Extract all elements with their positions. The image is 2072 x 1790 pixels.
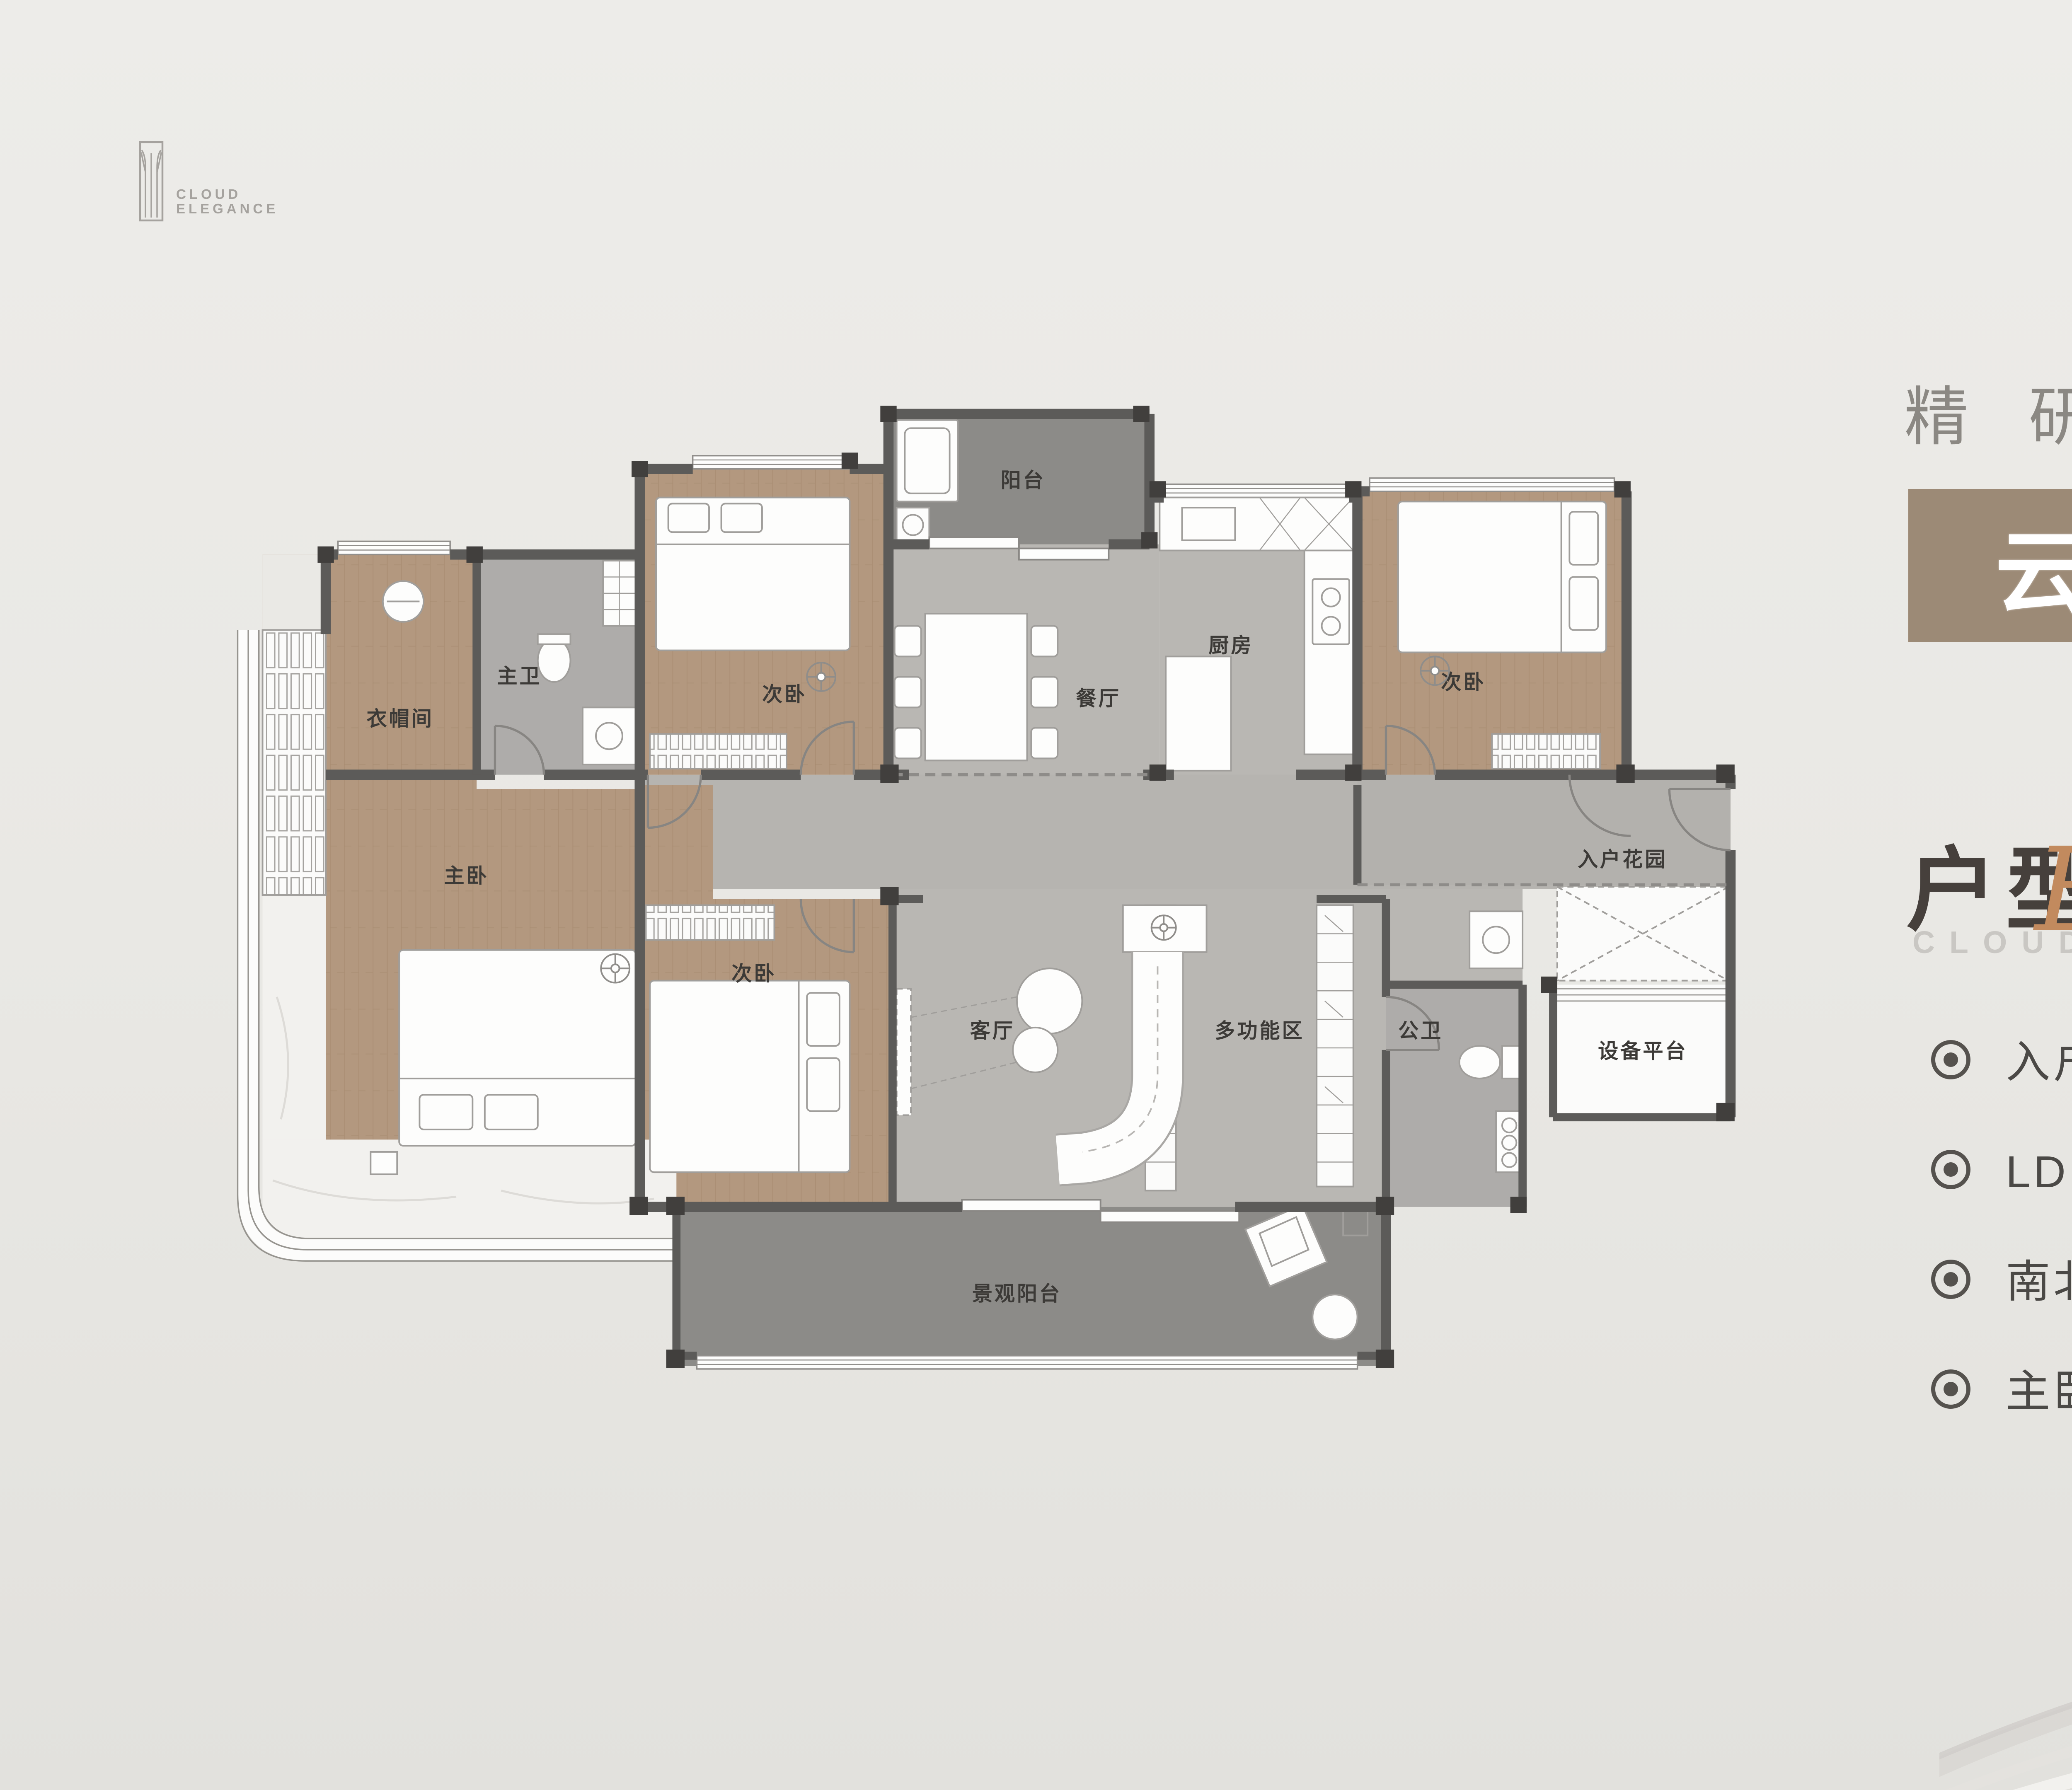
list-item: 主卧步入式衣帽间，270°全屏飘窗	[1931, 1353, 2072, 1423]
list-item: 入户花园设计，私藏生活小确幸	[1931, 1023, 2072, 1094]
room-label-entry-garden: 入户花园	[1578, 848, 1667, 871]
room-label-master-bedroom: 主卧	[444, 864, 489, 887]
target-bullet-icon	[1931, 1369, 1970, 1408]
brand-line1: CLOUD	[176, 188, 278, 204]
target-bullet-icon	[1931, 1259, 1970, 1298]
window-bedroom-nw	[693, 456, 850, 469]
room-label-balcony-north: 阳台	[1001, 469, 1046, 492]
window-balcony-south	[697, 1356, 1358, 1369]
slogan-heading: 精研空间人居美学	[1904, 365, 2072, 458]
window-kitchen	[1159, 484, 1357, 498]
room-label-guest-bath: 公卫	[1398, 1019, 1443, 1042]
room-label-dining: 餐厅	[1076, 687, 1121, 710]
room-label-kitchen: 厨房	[1208, 634, 1253, 657]
list-item: 南北对流双阳台，享清风阳光	[1931, 1243, 2072, 1313]
page: CLOUD ELEGANCE 精研空间人居美学 云领 四室二厅二卫 建筑面积约1…	[0, 0, 2072, 1790]
swoosh-decoration	[1939, 1521, 2072, 1790]
section-subtitle-caps: CLOUD	[1912, 926, 2072, 961]
unit-badge: 云领 四室二厅二卫 建筑面积约123m2	[1908, 489, 2072, 642]
brand-line2: ELEGANCE	[176, 204, 278, 220]
brand-logo: CLOUD ELEGANCE	[139, 141, 278, 222]
brand-logo-text: CLOUD ELEGANCE	[176, 188, 278, 222]
room-label-multi-zone: 多功能区	[1215, 1019, 1304, 1042]
room-label-master-bath: 主卫	[497, 665, 542, 687]
window-bedroom-ne	[1370, 478, 1614, 491]
room-label-cloakroom: 衣帽间	[366, 708, 433, 731]
room-label-bedroom-sw: 次卧	[731, 963, 776, 985]
feature-list: 入户花园设计，私藏生活小确幸 LDKB一体化大方厅，迭新空间想象 南北对流双阳台…	[1931, 1023, 2072, 1463]
feature-text: 主卧步入式衣帽间，270°全屏飘窗	[2006, 1356, 2072, 1420]
room-label-bedroom-ne: 次卧	[1441, 671, 1486, 694]
target-bullet-icon	[1931, 1149, 1970, 1188]
target-bullet-icon	[1931, 1039, 1970, 1079]
room-label-bedroom-nw: 次卧	[762, 683, 807, 706]
guest-bath-floor	[1386, 984, 1523, 1207]
feature-text: LDKB一体化大方厅，迭新空间想象	[2006, 1137, 2072, 1201]
tower-logo-icon	[139, 141, 164, 222]
list-item: LDKB一体化大方厅，迭新空间想象	[1931, 1133, 2072, 1204]
window-cloakroom	[338, 541, 450, 554]
room-label-equipment: 设备平台	[1598, 1040, 1687, 1063]
floor-plan: 阳台 次卧 主卫 衣帽间 餐厅 厨房 次卧 入户花园 主卧 次卧 客厅 多功能区…	[215, 385, 1765, 1405]
feature-text: 南北对流双阳台，享清风阳光	[2006, 1246, 2072, 1311]
room-label-balcony-south: 景观阳台	[972, 1282, 1062, 1305]
feature-text: 入户花园设计，私藏生活小确幸	[2006, 1027, 2072, 1091]
unit-name: 云领	[1995, 499, 2072, 632]
room-label-living: 客厅	[970, 1019, 1015, 1042]
